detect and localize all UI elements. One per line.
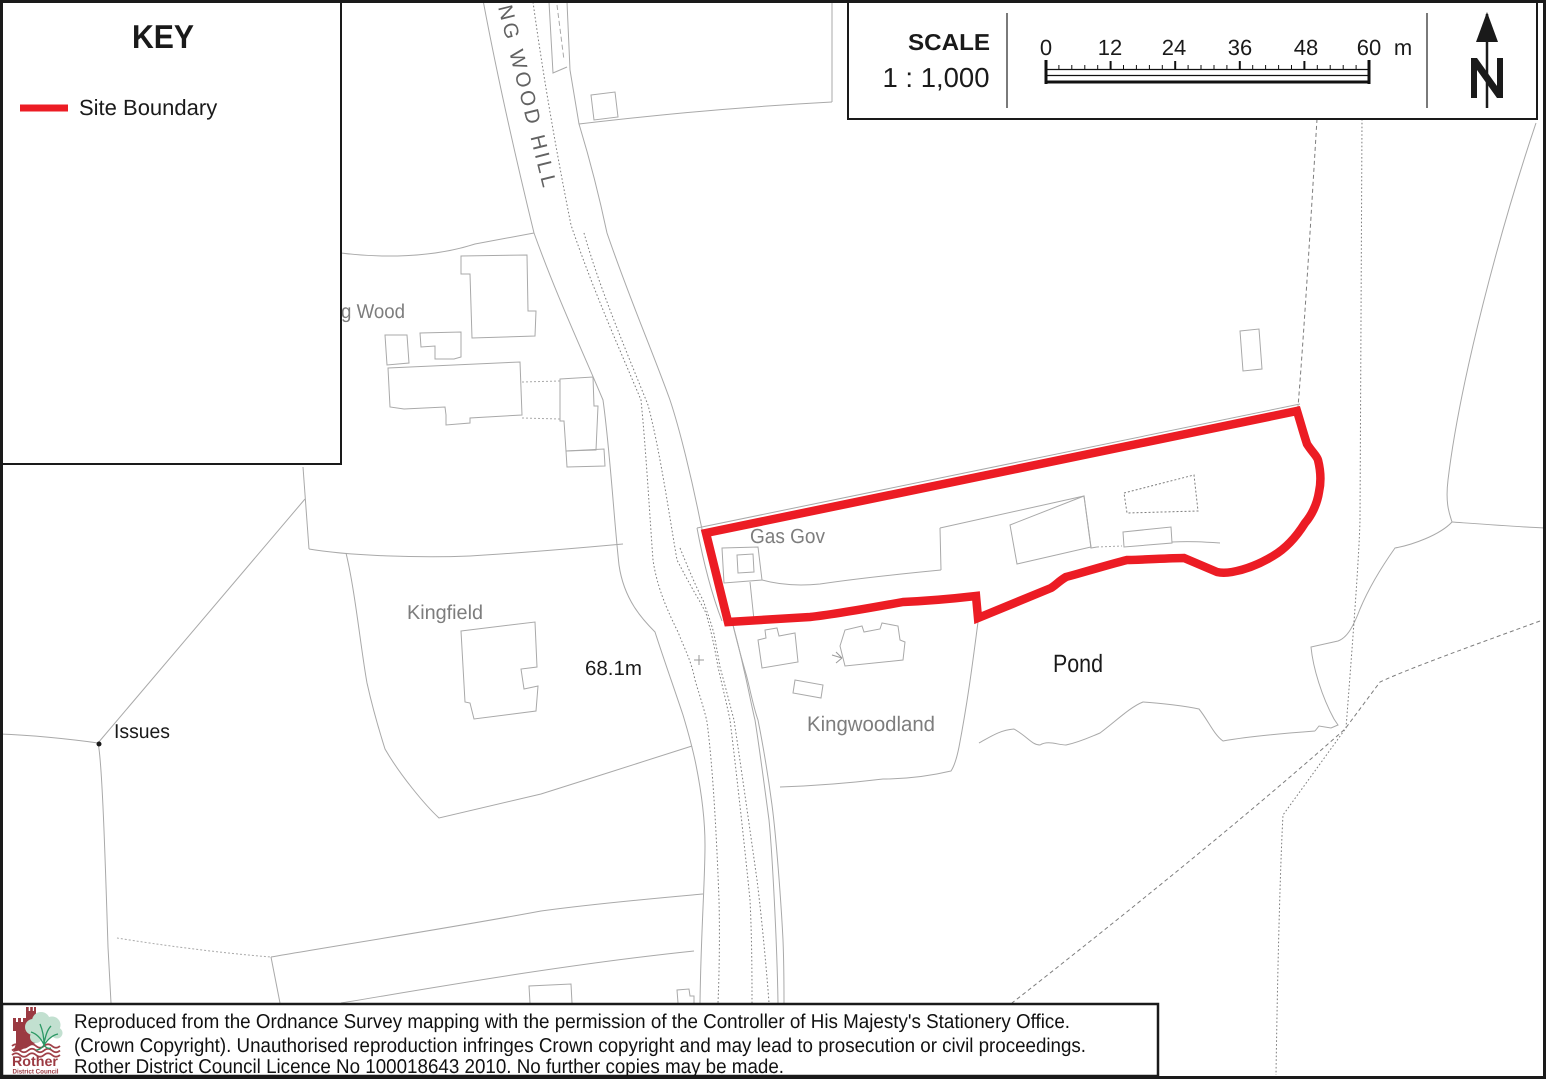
svg-text:Reproduced from the Ordnance S: Reproduced from the Ordnance Survey mapp…	[74, 1011, 1070, 1033]
svg-text:24: 24	[1162, 35, 1186, 60]
svg-text:1 : 1,000: 1 : 1,000	[883, 62, 990, 93]
svg-text:Gas Gov: Gas Gov	[750, 525, 826, 548]
svg-text:(Crown Copyright). Unauthorise: (Crown Copyright). Unauthorised reproduc…	[74, 1035, 1086, 1057]
svg-text:0: 0	[1040, 35, 1052, 60]
svg-text:Kingfield: Kingfield	[407, 602, 483, 624]
svg-text:g Wood: g Wood	[341, 301, 405, 323]
svg-text:36: 36	[1228, 35, 1252, 60]
svg-text:KEY: KEY	[132, 18, 194, 55]
svg-text:m: m	[1394, 35, 1412, 60]
svg-text:60: 60	[1357, 35, 1381, 60]
svg-text:Pond: Pond	[1053, 650, 1103, 678]
svg-text:Rother: Rother	[12, 1053, 59, 1069]
svg-text:12: 12	[1098, 35, 1122, 60]
svg-text:Site Boundary: Site Boundary	[79, 95, 217, 120]
svg-text:48: 48	[1294, 35, 1318, 60]
svg-text:SCALE: SCALE	[908, 29, 990, 55]
svg-text:Rother District Council Licenc: Rother District Council Licence No 10001…	[74, 1056, 784, 1078]
svg-text:Kingwoodland: Kingwoodland	[807, 713, 935, 736]
svg-text:District Council: District Council	[13, 1069, 59, 1076]
svg-text:68.1m: 68.1m	[585, 657, 642, 680]
svg-text:Issues: Issues	[114, 721, 170, 743]
